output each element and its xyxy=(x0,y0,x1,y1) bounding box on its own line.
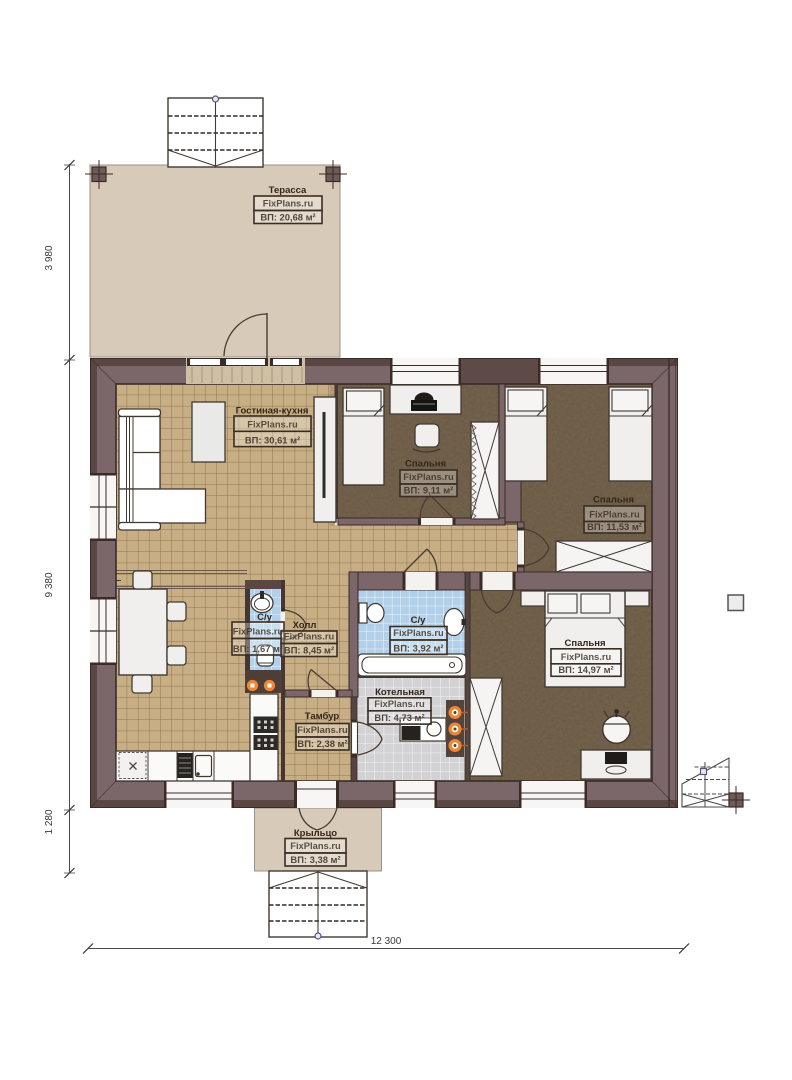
svg-text:FixPlans.ru: FixPlans.ru xyxy=(233,626,284,637)
svg-text:FixPlans.ru: FixPlans.ru xyxy=(290,840,341,851)
svg-text:Спальня: Спальня xyxy=(405,459,446,470)
svg-text:Спальня: Спальня xyxy=(564,638,605,649)
svg-text:9 380: 9 380 xyxy=(44,572,55,597)
svg-text:FixPlans.ru: FixPlans.ru xyxy=(247,419,298,430)
svg-text:С/у: С/у xyxy=(257,612,273,623)
svg-text:Гостиная-кухня: Гостиная-кухня xyxy=(236,406,309,417)
svg-text:ВП: 3,92 м²: ВП: 3,92 м² xyxy=(393,642,443,653)
svg-text:ВП: 4,73 м²: ВП: 4,73 м² xyxy=(374,712,424,723)
svg-text:ВП: 11,53 м²: ВП: 11,53 м² xyxy=(587,521,642,532)
svg-text:Котельная: Котельная xyxy=(375,687,425,698)
svg-text:ВП: 9,11 м²: ВП: 9,11 м² xyxy=(404,484,454,495)
svg-text:FixPlans.ru: FixPlans.ru xyxy=(297,724,348,735)
svg-text:ВП: 30,61 м²: ВП: 30,61 м² xyxy=(245,434,300,445)
svg-text:FixPlans.ru: FixPlans.ru xyxy=(393,627,444,638)
svg-text:FixPlans.ru: FixPlans.ru xyxy=(561,651,612,662)
svg-text:ВП: 8,45 м²: ВП: 8,45 м² xyxy=(284,644,334,655)
svg-text:ВП: 1,67 м²: ВП: 1,67 м² xyxy=(233,643,283,654)
svg-text:Спальня: Спальня xyxy=(593,495,634,506)
svg-text:ВП: 3,38 м²: ВП: 3,38 м² xyxy=(290,854,340,865)
svg-text:FixPlans.ru: FixPlans.ru xyxy=(284,631,335,642)
svg-text:3 980: 3 980 xyxy=(44,245,55,270)
svg-text:Терасса: Терасса xyxy=(269,185,307,196)
svg-text:Тамбур: Тамбур xyxy=(305,711,340,722)
svg-text:ВП: 14,97 м²: ВП: 14,97 м² xyxy=(558,664,613,675)
svg-text:12 300: 12 300 xyxy=(371,936,402,947)
svg-text:FixPlans.ru: FixPlans.ru xyxy=(403,471,454,482)
svg-text:ВП: 2,38 м²: ВП: 2,38 м² xyxy=(297,738,347,749)
svg-text:Холл: Холл xyxy=(293,620,317,631)
svg-text:FixPlans.ru: FixPlans.ru xyxy=(263,198,314,209)
svg-text:ВП: 20,68 м²: ВП: 20,68 м² xyxy=(260,211,315,222)
svg-text:С/у: С/у xyxy=(411,615,427,626)
svg-text:FixPlans.ru: FixPlans.ru xyxy=(589,509,640,520)
svg-text:1 280: 1 280 xyxy=(44,809,55,834)
svg-text:FixPlans.ru: FixPlans.ru xyxy=(374,698,425,709)
